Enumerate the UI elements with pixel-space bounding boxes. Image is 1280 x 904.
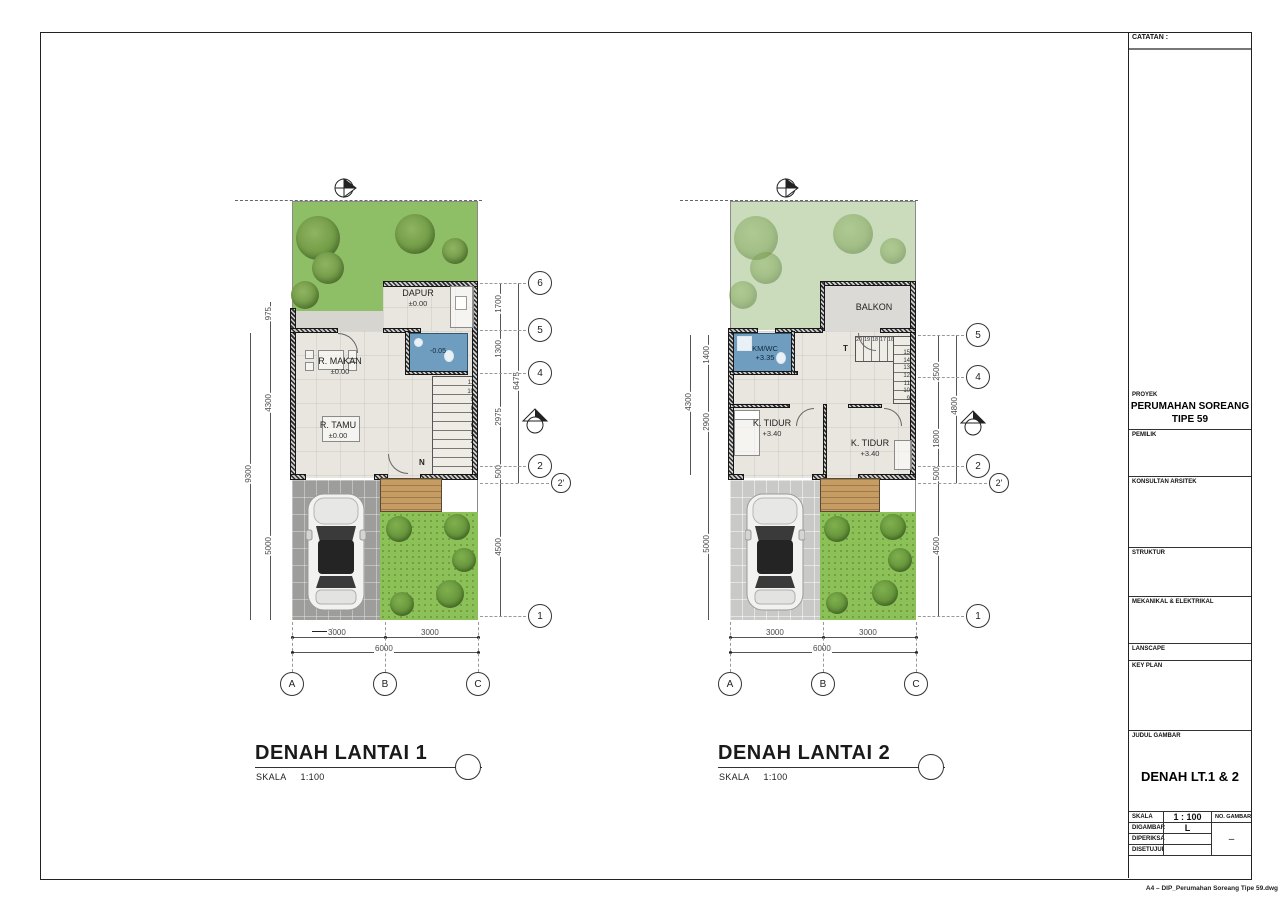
shrub-icon [872,580,898,606]
grid-bubble-2: 2 [528,454,552,478]
title-rule [255,767,482,768]
grid-bubble-B: B [811,672,835,696]
dim-label: 2900 [703,412,711,432]
shrub-icon [390,592,414,616]
dim-label: 6000 [812,645,832,653]
tb-catatan: CATATAN : [1129,32,1251,50]
grid-leader [480,330,526,331]
grid-bubble-5: 5 [966,323,990,347]
tb-mekanikal: MEKANIKAL & ELEKTRIKAL [1129,597,1251,644]
grid-bubble-1: 1 [528,604,552,628]
dim-label: 1400 [703,345,711,365]
tree-icon [729,281,757,309]
plan2-stair-direction-label: T [843,344,848,353]
tree-icon [880,238,906,264]
plan2-label-tidur2: K. TIDUR +3.40 [840,438,900,458]
grid-bubble-6: 6 [528,271,552,295]
shrub-icon [452,548,476,572]
tb-diperiksa-label: DIPERIKSA [1129,834,1163,845]
title-block: CATATAN : PROYEK PERUMAHAN SOREANG TIPE … [1128,32,1250,878]
dim-label: 4500 [495,537,503,557]
grid-leader [918,483,987,484]
dim-label: 6000 [374,645,394,653]
dim-label: 3000 [420,629,440,637]
stair-number: 17 [880,338,886,344]
plan1-title: DENAH LANTAI 1 [255,742,427,765]
wall [730,404,790,408]
tb-digambar-label: DIGAMBAR [1129,823,1163,834]
section-marker-icon [958,410,988,436]
grid-leader [480,616,526,617]
shrub-icon [824,516,850,542]
grid-bubble-A: A [280,672,304,696]
tb-skala-value: 1 : 100 [1163,812,1211,823]
grid-bubble-B: B [373,672,397,696]
wall [405,331,410,375]
dim-line [270,302,271,620]
tb-digambar-value: L [1163,823,1211,834]
wall [820,281,825,331]
plan1-label-makan: R. MAKAN ±0.00 [310,356,370,376]
grid-leader [385,622,386,672]
grid-leader [478,622,479,672]
plan2-label-tidur1: K. TIDUR +3.40 [742,418,802,438]
section-marker-icon [774,176,802,200]
plan2-title: DENAH LANTAI 2 [718,742,890,765]
wall [848,404,882,408]
grid-bubble-5: 5 [528,318,552,342]
dim-label: 4300 [685,392,693,412]
tb-judul: JUDUL GAMBAR DENAH LT.1 & 2 [1129,731,1251,812]
plan2-stair-numbers-side: 1514131211109 [898,350,910,402]
dim-label: 500 [933,466,941,481]
tree-icon [291,281,319,309]
tb-proyek: PROYEK PERUMAHAN SOREANG TIPE 59 [1129,390,1251,430]
wall [290,328,338,333]
dim-label: 2500 [933,362,941,382]
drawing-sheet: 1110987654321 N DAPUR ±0.00 R. MAKAN ±0.… [0,0,1280,904]
grid-leader [823,622,824,672]
grid-leader [480,483,549,484]
tb-lanscape: LANSCAPE [1129,644,1251,661]
dim-label: 1700 [495,294,503,314]
tb-keyplan: KEY PLAN [1129,661,1251,731]
grid-bubble-2p: 2' [551,473,571,493]
tb-pemilik: PEMILIK [1129,430,1251,477]
tb-nogambar-value: – [1211,823,1251,856]
dim-label: 5000 [265,536,273,556]
tb-disetujui-value [1163,845,1211,856]
grid-leader [480,466,526,467]
dim-label: 4500 [933,536,941,556]
grid-bubble-A: A [718,672,742,696]
stair-number: 14 [898,358,910,364]
section-marker-icon [332,176,360,200]
tb-disetujui-label: DISETUJUI [1129,845,1163,856]
tb-notes-area [1129,50,1251,390]
kitchen-sink-icon [455,296,467,310]
wall [791,331,795,375]
dim-label: 2975 [495,407,503,427]
grid-bubble-4: 4 [966,365,990,389]
tree-icon [833,214,873,254]
sheet-border [40,32,1252,880]
stair-number: 9 [898,396,910,402]
grid-bubble-4: 4 [528,361,552,385]
plan2-label-kmwc: KM/WC +3.35 [740,344,790,362]
plan1-label-tamu: R. TAMU ±0.00 [308,420,368,440]
stair-number: 12 [898,373,910,379]
tb-nogambar-label: NO. GAMBAR [1211,812,1251,823]
grid-bubble-2p: 2' [989,473,1009,493]
wall [290,308,296,480]
tree-icon [750,252,782,284]
wall [383,328,421,333]
wall [823,404,827,480]
plan1-scale: SKALA1:100 [256,772,325,782]
title-circle-icon [918,754,944,780]
dim-label: 975 [265,306,273,321]
grid-leader [730,622,731,672]
grid-leader [292,622,293,672]
grid-bubble-1: 1 [966,604,990,628]
sink-icon [414,338,423,347]
plan1-stair-direction-label: N [419,458,425,467]
grid-leader [918,335,964,336]
dim-label: 3000 [765,629,785,637]
tb-konsultan: KONSULTAN ARSITEK [1129,477,1251,548]
stair-number: 16 [888,338,894,344]
grid-leader [480,283,526,284]
tb-skala-label: SKALA [1129,812,1163,823]
tb-diperiksa-value [1163,834,1211,845]
wall [730,371,798,375]
grid-leader [916,622,917,672]
dim-label: 1800 [933,429,941,449]
stair-number: 11 [898,381,910,387]
plan1-label-kmwc-level: -0.05 [420,348,456,356]
tb-struktur: STRUKTUR [1129,548,1251,597]
wall [880,328,916,333]
dim-label: 1300 [495,339,503,359]
stair-number: 15 [898,350,910,356]
plan1-deck [380,478,442,512]
shrub-icon [888,548,912,572]
car-icon [306,492,366,612]
dim-line [938,335,939,483]
tree-icon [395,214,435,254]
plan2-scale: SKALA1:100 [719,772,788,782]
grid-bubble-C: C [904,672,928,696]
dim-label: 3000 [858,629,878,637]
stair-number: 10 [898,388,910,394]
grid-bubble-2: 2 [966,454,990,478]
grid-leader [918,377,964,378]
wall [728,328,758,333]
grid-leader [918,466,964,467]
section-marker-icon [520,408,550,434]
shrub-icon [436,580,464,608]
car-icon [745,492,805,612]
sheet-footer-note: A4 – DIP_Perumahan Soreang Tipe 59.dwg [1078,885,1278,892]
plan1-label-dapur: DAPUR ±0.00 [388,288,448,308]
shrub-icon [826,592,848,614]
stair-number: 13 [898,365,910,371]
grid-bubble-C: C [466,672,490,696]
tree-icon [312,252,344,284]
grid-leader [918,616,964,617]
dim-label: 3000 [327,629,347,637]
dim-label: 5000 [703,534,711,554]
wall [775,328,823,333]
plan2-deck [820,478,880,512]
shrub-icon [444,514,470,540]
shrub-icon [386,516,412,542]
title-circle-icon [455,754,481,780]
dim-label: 9300 [245,464,253,484]
wall [405,371,468,375]
tree-icon [442,238,468,264]
wall [820,281,916,286]
grid-leader [480,373,526,374]
plan2-label-balkon: BALKON [844,302,904,313]
shrub-icon [880,514,906,540]
title-rule [718,767,945,768]
dim-label: 4300 [265,393,273,413]
